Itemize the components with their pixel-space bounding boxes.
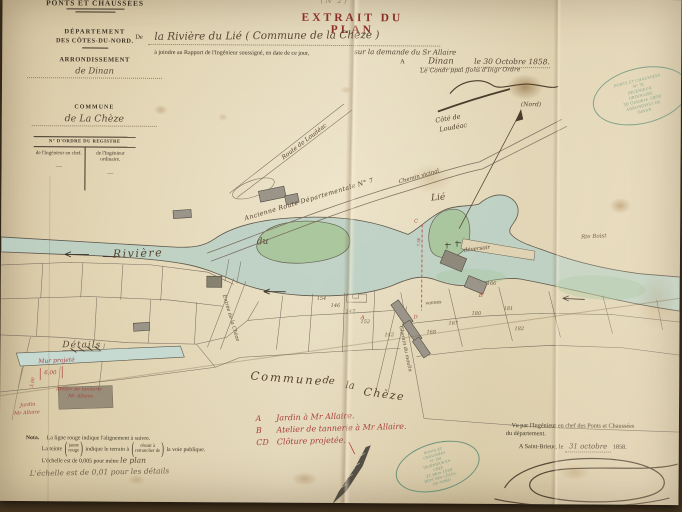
divider xyxy=(66,8,124,9)
nota-line2: La teinte (jaunerouge) indique le terrai… xyxy=(42,443,251,455)
signature-flourish-bottom xyxy=(494,458,677,505)
divider xyxy=(82,47,108,48)
details-title: Détails xyxy=(62,340,101,351)
page-note: ( N° 2 ) xyxy=(321,0,347,5)
legend-key-cd: CD xyxy=(256,438,274,448)
red-mark-d: D xyxy=(413,314,418,320)
label-commune-2: de xyxy=(322,375,336,387)
legend-text-b: Atelier de tannerie à Mr Allaire. xyxy=(276,422,406,435)
parcel-182: 182 xyxy=(515,326,525,332)
approval-line2: du département. xyxy=(506,430,668,438)
registre-col1-label: de l'Ingénieur en chef. xyxy=(35,150,84,156)
arrondissement-value: de Dinan xyxy=(27,66,162,79)
parcel-168: 168 xyxy=(426,330,436,336)
nota-line1: La ligne rouge indique l'alignement à su… xyxy=(47,435,151,442)
legend-row-b: B Atelier de tannerie à Mr Allaire. xyxy=(256,422,407,435)
commune-block: COMMUNE de La Chèze xyxy=(32,104,157,127)
approval-year: 1858. xyxy=(613,444,627,451)
attach-line: à joindre au Rapport de l'Ingénieur sous… xyxy=(154,50,309,57)
place-prefix: A xyxy=(400,58,405,65)
registre-dash2: — xyxy=(86,170,135,176)
brace-open: ( xyxy=(65,438,68,457)
red-mark-c: C xyxy=(414,218,418,224)
label-commune-1: Commune xyxy=(250,368,324,388)
approval-date-hand: 31 octobre xyxy=(565,442,611,452)
nota-label: Nota. xyxy=(26,435,39,441)
brace-close: ) xyxy=(161,438,164,457)
parcel-181: 181 xyxy=(504,306,514,312)
arrondissement-label: ARRONDISSEMENT xyxy=(27,56,162,64)
registre-dash1: — xyxy=(34,164,83,170)
photo-backdrop: C D A B 7,50 Rivière du Lié Ancienne Rou… xyxy=(0,0,682,512)
red-mark-b: B xyxy=(478,293,483,299)
label-riviere: Rivière xyxy=(112,246,164,260)
document-paper: C D A B 7,50 Rivière du Lié Ancienne Rou… xyxy=(0,0,682,505)
parcel-166: 166 xyxy=(487,281,497,287)
demande-line: sur la demande du Sr Allaire xyxy=(354,48,456,57)
label-du: du xyxy=(256,237,269,248)
legend-key-a: A xyxy=(255,414,273,424)
pen-arrow xyxy=(332,442,370,504)
label-rue-entree: Entrée de la Chèze xyxy=(221,293,242,342)
nota-opt-rouge: rouge xyxy=(68,449,79,455)
parcel-147: 147 xyxy=(346,309,356,315)
red-measure: 7,50 xyxy=(416,237,421,246)
details-jardin-line1: Jardin xyxy=(20,402,36,409)
approval-place: A Saint-Brieuc, le xyxy=(519,443,564,450)
legend-text-a: Jardin à Mr Allaire. xyxy=(276,411,355,422)
nota-teinte-post: la voie publique. xyxy=(166,446,205,452)
label-lie: Lié xyxy=(430,191,447,203)
legend-key-b: B xyxy=(256,426,274,436)
divider xyxy=(75,11,115,12)
parcel-154: 154 xyxy=(317,296,327,302)
nota-scale-printed: L'échelle est de 0,005 pour mètre xyxy=(42,458,119,464)
label-vannes: vannes xyxy=(425,300,442,306)
details-measure1: 6,00 xyxy=(44,370,56,376)
parcel-142: 142 xyxy=(384,332,394,338)
nota-scale-details: L'échelle est de 0,01 pour les détails xyxy=(30,464,251,477)
nota-block: Nota. La ligne rouge indique l'alignemen… xyxy=(26,435,251,476)
parcel-146: 146 xyxy=(331,303,341,309)
label-route-loudeac: Route de Loudéac xyxy=(280,122,329,162)
nota-opt-retrancher: retrancher de xyxy=(135,449,160,455)
parcel-152: 152 xyxy=(361,319,371,325)
parcel-167: 167 xyxy=(449,321,459,327)
label-commune-4: Chèze xyxy=(363,385,406,403)
commune-value: de La Chèze xyxy=(32,113,157,127)
service-title: PONTS ET CHAUSSÉES xyxy=(27,0,162,8)
approval-place-line: A Saint-Brieuc, le 31 octobre 1858. xyxy=(478,442,668,451)
subject-prefix: De xyxy=(135,34,143,41)
registre-col2-label: de l'Ingénieur ordinaire. xyxy=(86,150,135,162)
approval-block: Vu par l'Ingénieur en chef des Ponts et … xyxy=(478,422,668,451)
signer-title: Le Condr ppal ffons d'Ingr Ordre xyxy=(420,66,520,74)
parcel-180: 180 xyxy=(472,311,482,317)
brace-open: ( xyxy=(131,438,134,457)
red-legend: A Jardin à Mr Allaire. B Atelier de tann… xyxy=(255,410,407,447)
registre-col-ordinaire: de l'Ingénieur ordinaire. — xyxy=(85,147,136,190)
label-nord: (Nord) xyxy=(521,101,542,108)
nota-teinte-pre: La teinte xyxy=(42,446,62,452)
label-commune-3: la xyxy=(345,380,355,392)
registre-table: N° D'ORDRE DU REGISTRE de l'Ingénieur en… xyxy=(33,136,135,191)
commune-label: COMMUNE xyxy=(32,104,157,111)
label-rte-boist: Rte Boist xyxy=(580,233,608,240)
details-atelier-line2: Mr Allaire xyxy=(68,394,93,399)
registre-label: N° D'ORDRE DU REGISTRE xyxy=(34,137,136,148)
nota-teinte-mid: indique le terrain à xyxy=(85,446,129,452)
brace-close: ) xyxy=(80,438,83,457)
details-atelier-line1: Atelier de tannerie xyxy=(56,387,102,392)
registre-col-chef: de l'Ingénieur en chef. — xyxy=(33,147,85,190)
subject-rule xyxy=(148,31,440,47)
approval-line1: Vu par l'Ingénieur en chef des Ponts et … xyxy=(478,422,668,430)
